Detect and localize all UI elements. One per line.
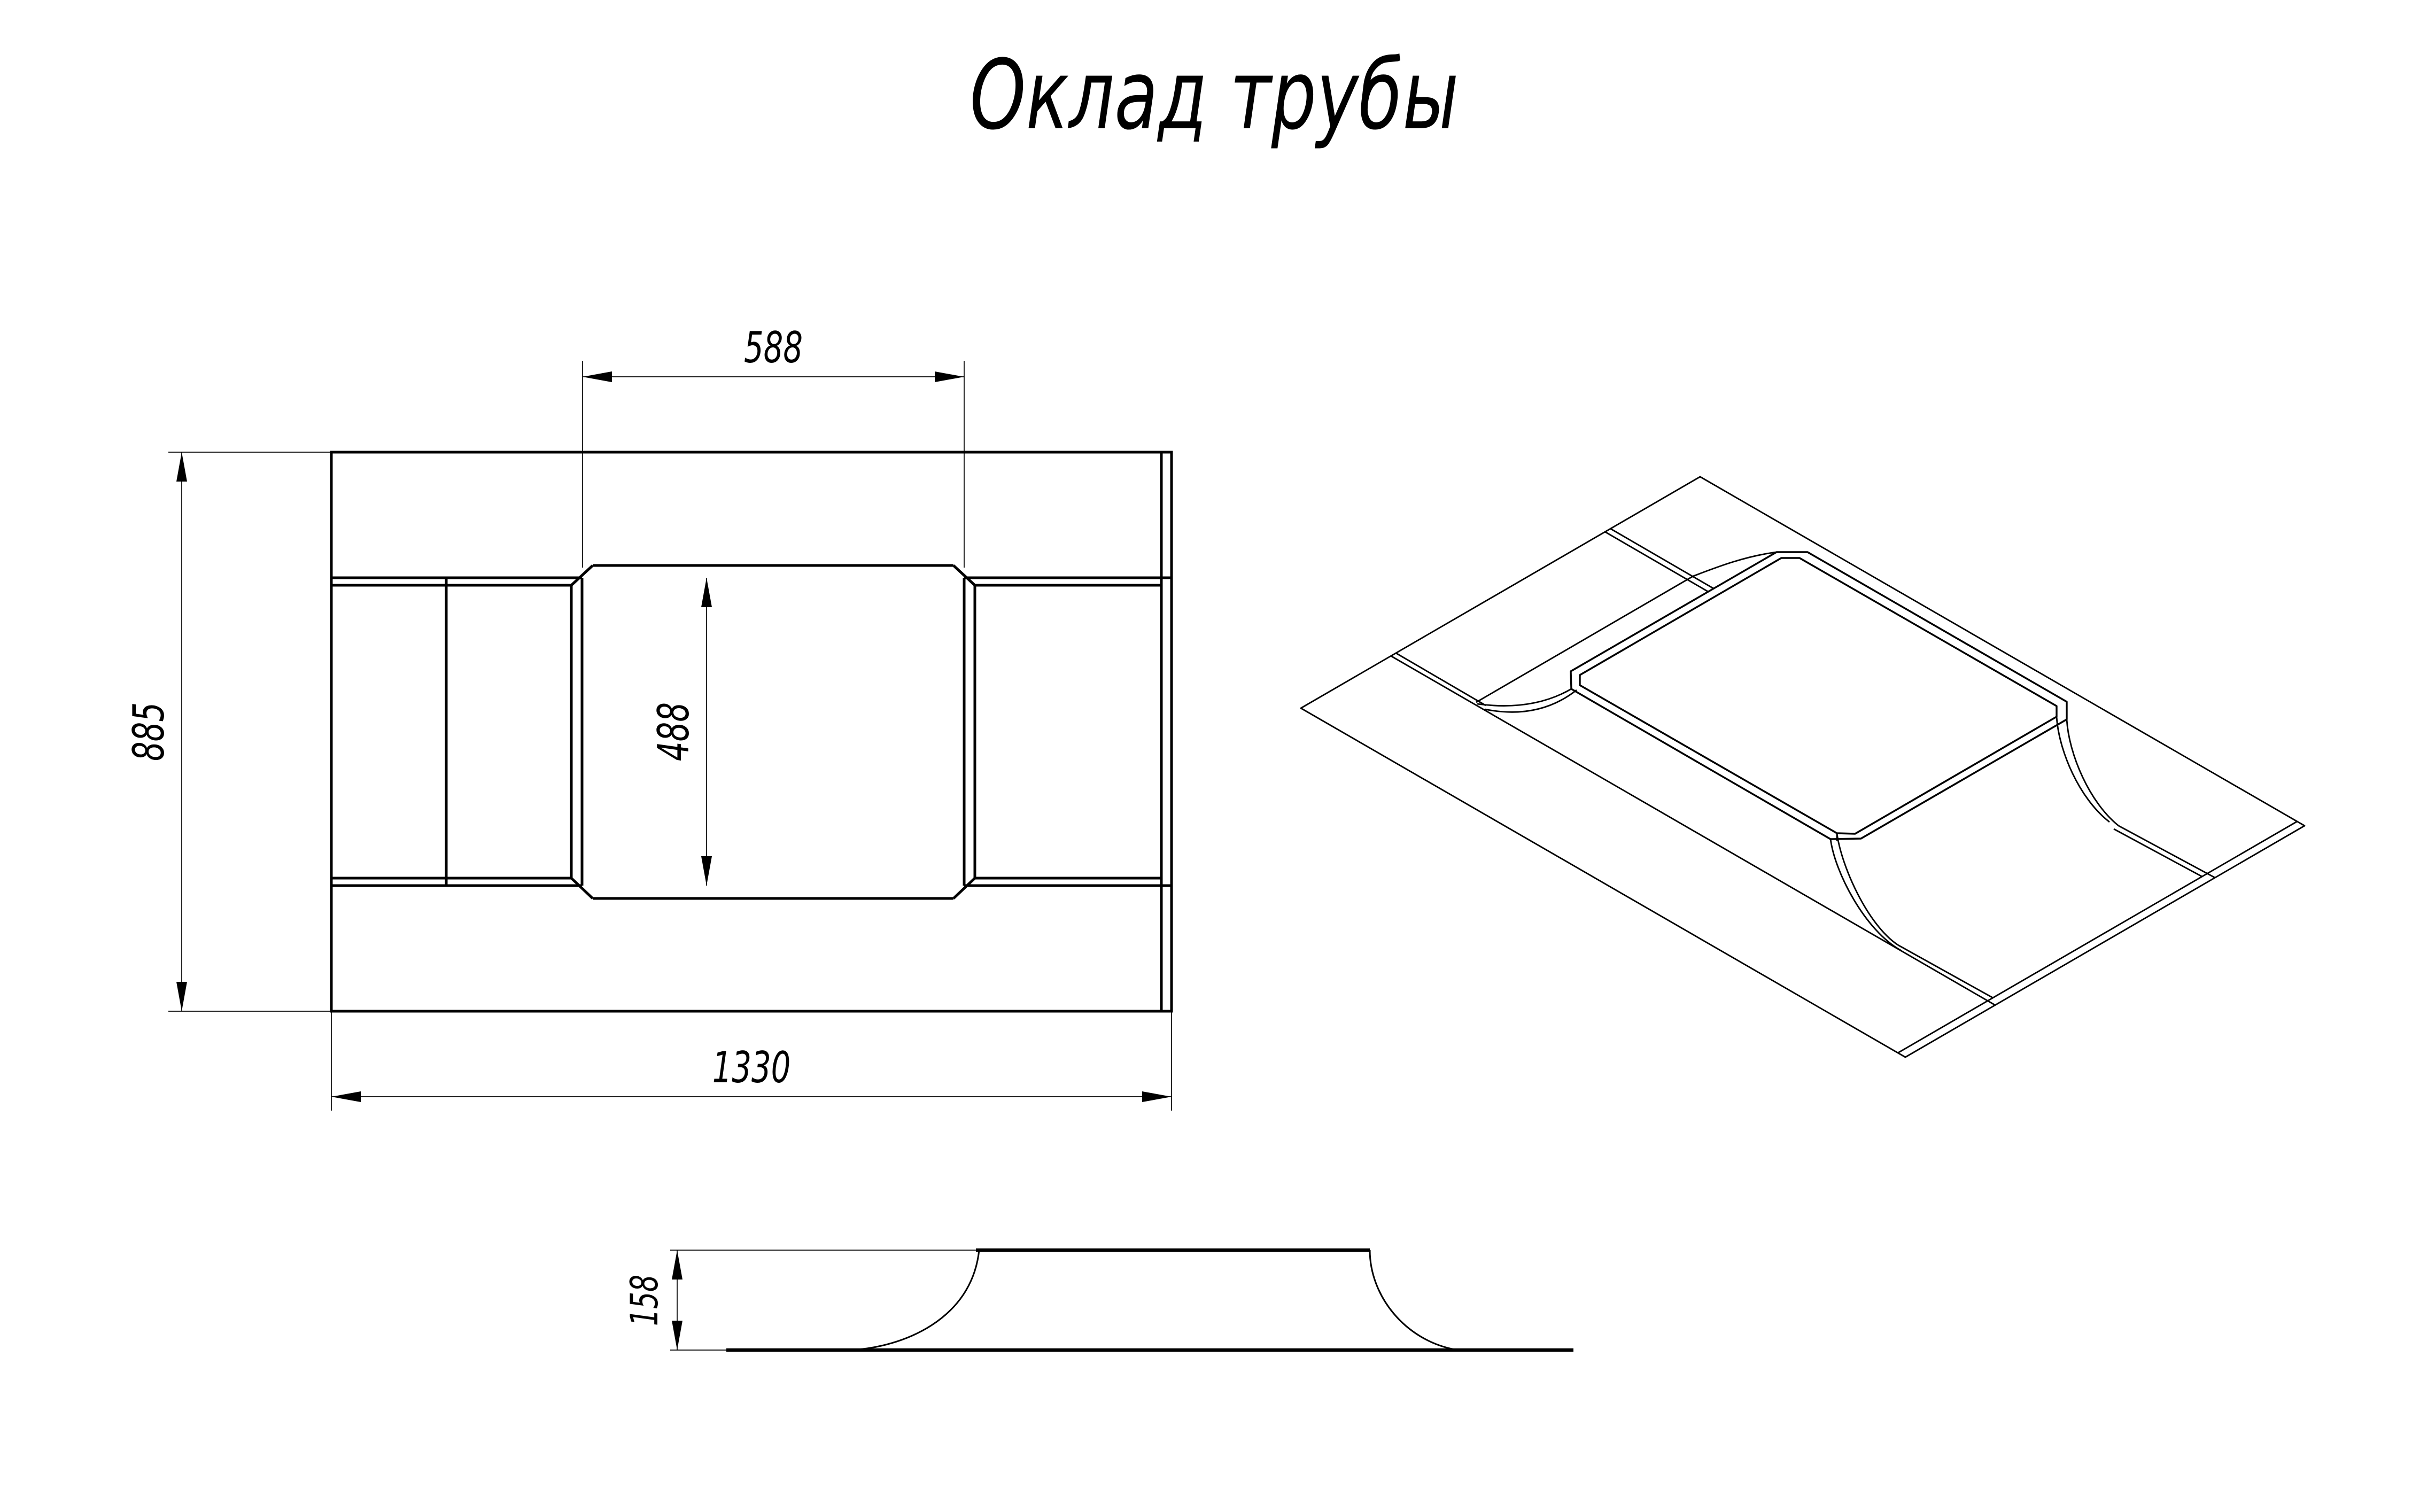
- dim-plate-height: 885: [125, 452, 331, 1011]
- dimension-arrow: [176, 982, 187, 1011]
- iso-rim-outer-contour: [1571, 552, 2067, 839]
- title-text: Оклад трубы: [970, 40, 1459, 151]
- dimension-arrow: [672, 1321, 683, 1350]
- plan-opening-chamfers: [571, 565, 975, 898]
- iso-right-curve-outer: [2067, 719, 2119, 826]
- dim-158-label: 158: [623, 1275, 666, 1326]
- iso-left-tangent-line: [1476, 576, 1693, 702]
- dim-opening-width: 588: [583, 323, 964, 568]
- side-left-curve: [851, 1250, 979, 1350]
- dimension-arrow: [331, 1091, 361, 1102]
- dimension-arrow: [672, 1250, 683, 1280]
- drawing-title: Оклад трубы: [970, 40, 1459, 151]
- iso-left-top-silhouette: [1693, 552, 1777, 576]
- dimension-arrow: [176, 452, 187, 482]
- iso-fold-bottom-inner-left: [1396, 653, 1486, 705]
- iso-right-curve-inner: [2057, 717, 2109, 822]
- dimension-arrow: [935, 371, 964, 382]
- iso-fold-top-inner-left: [1605, 532, 1708, 592]
- iso-hem-line: [1898, 821, 2297, 1053]
- dim-885-extension-lines: [168, 452, 331, 1011]
- iso-rim-inner-contour: [1580, 558, 2057, 834]
- dimension-arrow: [701, 578, 712, 607]
- dim-588-extension-lines: [583, 361, 964, 568]
- plan-plate-outline: [331, 452, 1172, 1011]
- iso-fold-top-outer-right: [2119, 826, 2215, 878]
- dim-885-label: 885: [125, 702, 174, 761]
- isometric-view: [1301, 477, 2305, 1057]
- iso-left-curl-outer: [1477, 689, 1571, 706]
- side-view: 158: [623, 1250, 1573, 1350]
- dimension-arrow: [583, 371, 612, 382]
- dim-opening-height: 488: [649, 578, 712, 886]
- plan-view: 588 488 885 1330: [125, 323, 1172, 1111]
- iso-front-curve-outer: [1831, 839, 1902, 951]
- dimension-arrow: [701, 856, 712, 886]
- dim-588-label: 588: [744, 323, 803, 373]
- iso-plate-outline: [1301, 477, 2305, 1057]
- dim-plate-width: 1330: [331, 1011, 1172, 1111]
- dim-profile-height: 158: [623, 1250, 979, 1350]
- dim-1330-label: 1330: [712, 1043, 791, 1093]
- iso-fold-top-outer-left: [1610, 529, 1713, 588]
- iso-fold-bottom-outer: [1391, 656, 1995, 1005]
- drawing-sheet: Оклад трубы 588: [0, 0, 2412, 1512]
- dim-158-extension-lines: [670, 1250, 979, 1350]
- iso-fold-bottom-inner-right: [1898, 945, 1993, 998]
- side-right-curve: [1370, 1250, 1455, 1350]
- iso-fold-top-inner-right: [2114, 829, 2202, 877]
- dimension-arrow: [1142, 1091, 1172, 1102]
- iso-front-curve-inner: [1837, 833, 1898, 945]
- dim-488-label: 488: [649, 702, 699, 761]
